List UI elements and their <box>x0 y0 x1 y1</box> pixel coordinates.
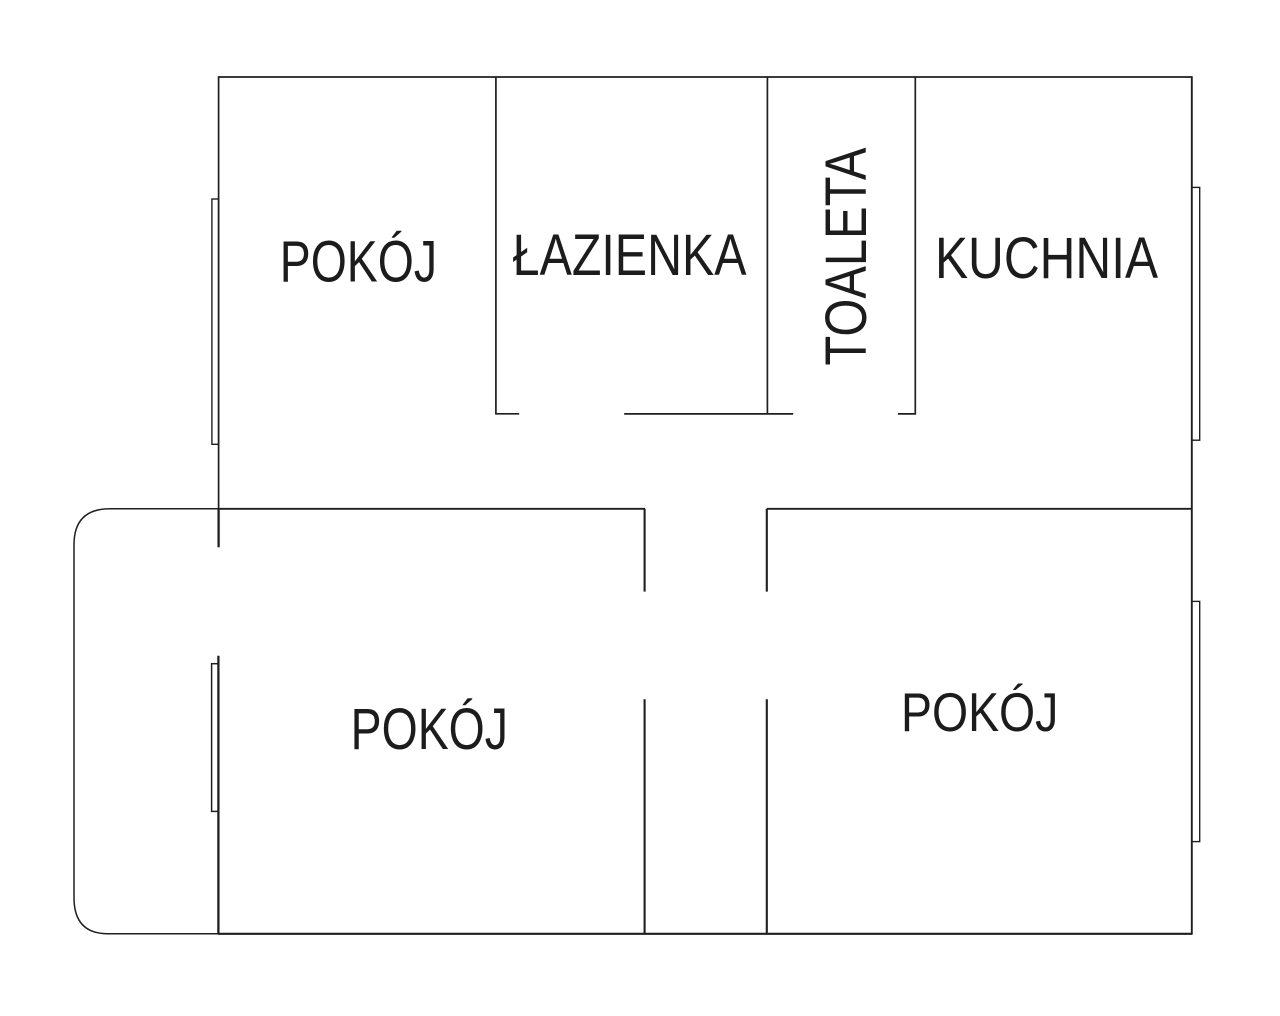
svg-text:POKÓJ: POKÓJ <box>901 681 1058 743</box>
svg-text:KUCHNIA: KUCHNIA <box>935 226 1158 290</box>
svg-text:POKÓJ: POKÓJ <box>351 697 508 762</box>
svg-text:TOALETA: TOALETA <box>814 147 879 365</box>
svg-text:ŁAZIENKA: ŁAZIENKA <box>513 224 747 288</box>
svg-text:POKÓJ: POKÓJ <box>280 230 437 295</box>
